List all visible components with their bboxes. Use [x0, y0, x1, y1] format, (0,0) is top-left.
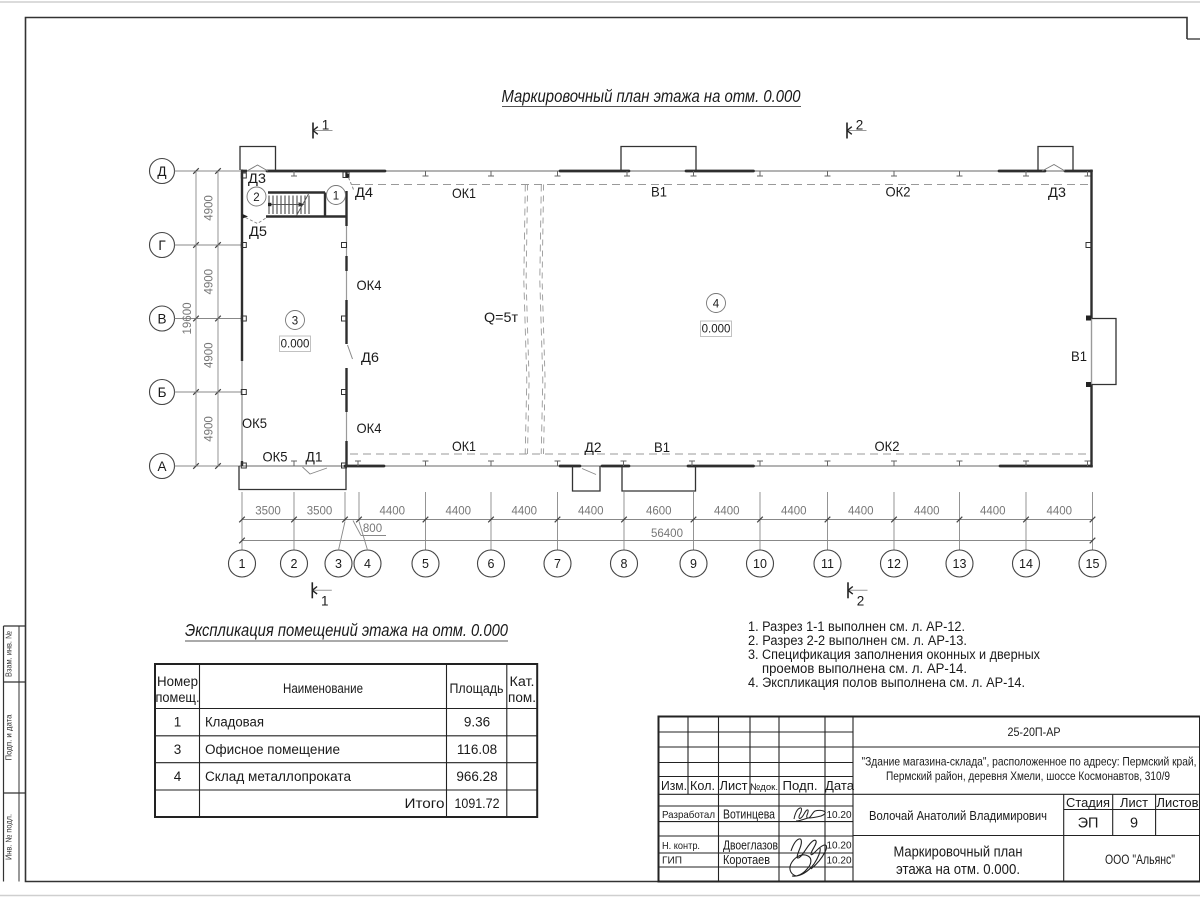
svg-text:25-20П-АР: 25-20П-АР [1008, 727, 1061, 739]
svg-text:4: 4 [174, 769, 182, 784]
svg-text:Д3: Д3 [248, 170, 266, 186]
svg-text:1: 1 [333, 191, 339, 203]
svg-text:пом.: пом. [508, 690, 536, 705]
svg-text:Маркировочный план этажа на от: Маркировочный план этажа на отм. 0.000 [502, 86, 801, 106]
svg-text:помещ.: помещ. [156, 690, 200, 705]
svg-text:В: В [157, 312, 166, 327]
svg-text:Разработал: Разработал [662, 809, 715, 821]
svg-text:116.08: 116.08 [457, 742, 497, 757]
svg-text:ГИП: ГИП [662, 855, 682, 867]
svg-text:Н. контр.: Н. контр. [662, 840, 700, 852]
svg-text:ОК1: ОК1 [452, 185, 476, 201]
svg-text:2. Разрез 2-2 выполнен см. л.: 2. Разрез 2-2 выполнен см. л. АР-13. [748, 633, 967, 648]
svg-text:"Здание магазина-склада", расп: "Здание магазина-склада", расположенное … [862, 755, 1197, 769]
svg-text:800: 800 [363, 523, 382, 535]
svg-text:9.36: 9.36 [464, 715, 490, 730]
svg-text:ОК2: ОК2 [886, 184, 911, 200]
svg-text:3: 3 [335, 557, 342, 571]
svg-text:4400: 4400 [1046, 506, 1072, 518]
svg-text:4400: 4400 [914, 506, 940, 518]
svg-text:7: 7 [554, 557, 561, 571]
svg-text:Подп. и дата: Подп. и дата [4, 714, 14, 760]
svg-text:3: 3 [292, 316, 298, 328]
svg-text:Наименование: Наименование [283, 681, 363, 696]
svg-text:Подп.: Подп. [783, 778, 818, 793]
svg-text:10.20: 10.20 [826, 856, 851, 867]
svg-text:9: 9 [690, 557, 697, 571]
svg-text:Изм.: Изм. [661, 778, 687, 793]
svg-text:6: 6 [488, 557, 495, 571]
svg-text:Д4: Д4 [355, 184, 373, 200]
svg-text:ОК1: ОК1 [452, 438, 476, 454]
svg-text:1091.72: 1091.72 [455, 796, 500, 811]
svg-text:14: 14 [1019, 557, 1033, 571]
svg-text:Экспликация помещений этажа на: Экспликация помещений этажа на отм. 0.00… [185, 620, 508, 640]
svg-text:Д3: Д3 [1048, 184, 1066, 200]
svg-text:В1: В1 [651, 184, 667, 200]
svg-text:4400: 4400 [445, 506, 471, 518]
svg-text:Двоеглазов: Двоеглазов [723, 839, 778, 853]
svg-text:3500: 3500 [255, 506, 281, 518]
svg-text:2: 2 [253, 192, 259, 204]
svg-text:0.000: 0.000 [281, 339, 310, 351]
svg-text:В1: В1 [654, 439, 670, 455]
svg-text:Г: Г [158, 238, 166, 253]
svg-text:ОК4: ОК4 [357, 420, 382, 436]
svg-text:4400: 4400 [980, 506, 1006, 518]
svg-text:ООО "Альянс": ООО "Альянс" [1105, 852, 1175, 867]
svg-text:56400: 56400 [651, 528, 683, 540]
svg-text:Коротаев: Коротаев [723, 853, 770, 867]
svg-text:Вотинцева: Вотинцева [723, 808, 775, 822]
svg-text:Итого: Итого [405, 796, 445, 811]
svg-text:Б: Б [158, 385, 167, 400]
svg-text:1: 1 [239, 557, 246, 571]
svg-text:ОК5: ОК5 [242, 415, 267, 431]
svg-text:4400: 4400 [781, 506, 807, 518]
svg-text:Офисное помещение: Офисное помещение [205, 742, 340, 757]
svg-text:Склад металлопроката: Склад металлопроката [205, 769, 351, 784]
svg-text:3. Спецификация заполнения око: 3. Спецификация заполнения оконных и две… [748, 647, 1040, 662]
svg-text:4900: 4900 [204, 269, 216, 295]
svg-text:№док.: №док. [750, 782, 778, 793]
svg-text:4400: 4400 [848, 506, 874, 518]
svg-text:2: 2 [857, 593, 865, 608]
svg-text:Номер: Номер [157, 674, 198, 689]
svg-text:4: 4 [713, 299, 720, 311]
svg-text:4900: 4900 [204, 416, 216, 442]
svg-text:Дата: Дата [825, 778, 855, 793]
svg-text:Лист: Лист [720, 778, 748, 793]
svg-text:Кладовая: Кладовая [205, 715, 264, 730]
svg-text:Листов: Листов [1157, 795, 1199, 810]
svg-text:этажа на отм. 0.000.: этажа на отм. 0.000. [896, 861, 1020, 878]
svg-text:8: 8 [621, 557, 628, 571]
svg-text:Кол.: Кол. [690, 778, 715, 793]
svg-text:15: 15 [1086, 557, 1100, 571]
svg-text:Площадь: Площадь [450, 681, 504, 696]
svg-text:Д5: Д5 [249, 223, 267, 239]
svg-text:2: 2 [291, 557, 298, 571]
svg-text:4400: 4400 [379, 506, 405, 518]
svg-text:Лист: Лист [1120, 795, 1148, 810]
svg-text:Кат.: Кат. [510, 674, 535, 689]
svg-text:ОК5: ОК5 [263, 449, 288, 465]
svg-text:4900: 4900 [204, 195, 216, 221]
svg-text:4. Экспликация полов выполнена: 4. Экспликация полов выполнена см. л. АР… [748, 675, 1025, 690]
svg-text:А: А [157, 459, 166, 474]
svg-text:3500: 3500 [307, 506, 333, 518]
svg-text:4: 4 [364, 557, 371, 571]
svg-text:4400: 4400 [714, 506, 740, 518]
svg-text:ОК2: ОК2 [875, 438, 900, 454]
svg-text:1: 1 [322, 118, 330, 133]
svg-text:4400: 4400 [578, 506, 604, 518]
svg-text:1: 1 [321, 593, 329, 608]
svg-text:11: 11 [821, 557, 834, 571]
svg-text:Q=5т: Q=5т [484, 309, 519, 325]
svg-text:13: 13 [953, 557, 967, 571]
svg-text:проемов выполнена см. л. АР-14: проемов выполнена см. л. АР-14. [762, 661, 967, 676]
svg-text:Волочай Анатолий Владимирович: Волочай Анатолий Владимирович [869, 808, 1047, 823]
svg-text:0.000: 0.000 [702, 324, 731, 336]
svg-text:12: 12 [887, 557, 901, 571]
svg-text:1: 1 [174, 715, 182, 730]
svg-text:Стадия: Стадия [1066, 795, 1110, 810]
svg-text:Д6: Д6 [361, 349, 379, 365]
svg-text:В1: В1 [1071, 348, 1087, 364]
svg-text:Д: Д [157, 164, 166, 179]
svg-text:Пермский район, деревня Хмели,: Пермский район, деревня Хмели, шоссе Кос… [886, 769, 1170, 783]
svg-text:2: 2 [856, 118, 864, 133]
svg-text:1. Разрез 1-1 выполнен см. л.: 1. Разрез 1-1 выполнен см. л. АР-12. [748, 619, 965, 634]
svg-text:Д1: Д1 [306, 449, 323, 465]
svg-text:Инв. № подл.: Инв. № подл. [4, 814, 14, 860]
svg-text:ОК4: ОК4 [357, 277, 382, 293]
svg-text:ЭП: ЭП [1078, 816, 1099, 832]
svg-text:10.20: 10.20 [826, 841, 851, 852]
svg-text:966.28: 966.28 [456, 769, 497, 784]
svg-text:4900: 4900 [204, 342, 216, 368]
svg-text:19600: 19600 [182, 303, 194, 335]
svg-text:10.20: 10.20 [826, 810, 851, 821]
svg-text:10: 10 [753, 557, 767, 571]
svg-text:4400: 4400 [511, 506, 537, 518]
svg-text:9: 9 [1130, 816, 1138, 832]
svg-text:Д2: Д2 [585, 439, 602, 455]
svg-text:Взам. инв. №: Взам. инв. № [4, 631, 14, 677]
svg-text:5: 5 [422, 557, 429, 571]
svg-text:3: 3 [174, 742, 182, 757]
svg-text:Маркировочный план: Маркировочный план [894, 844, 1023, 861]
svg-text:4600: 4600 [646, 506, 672, 518]
